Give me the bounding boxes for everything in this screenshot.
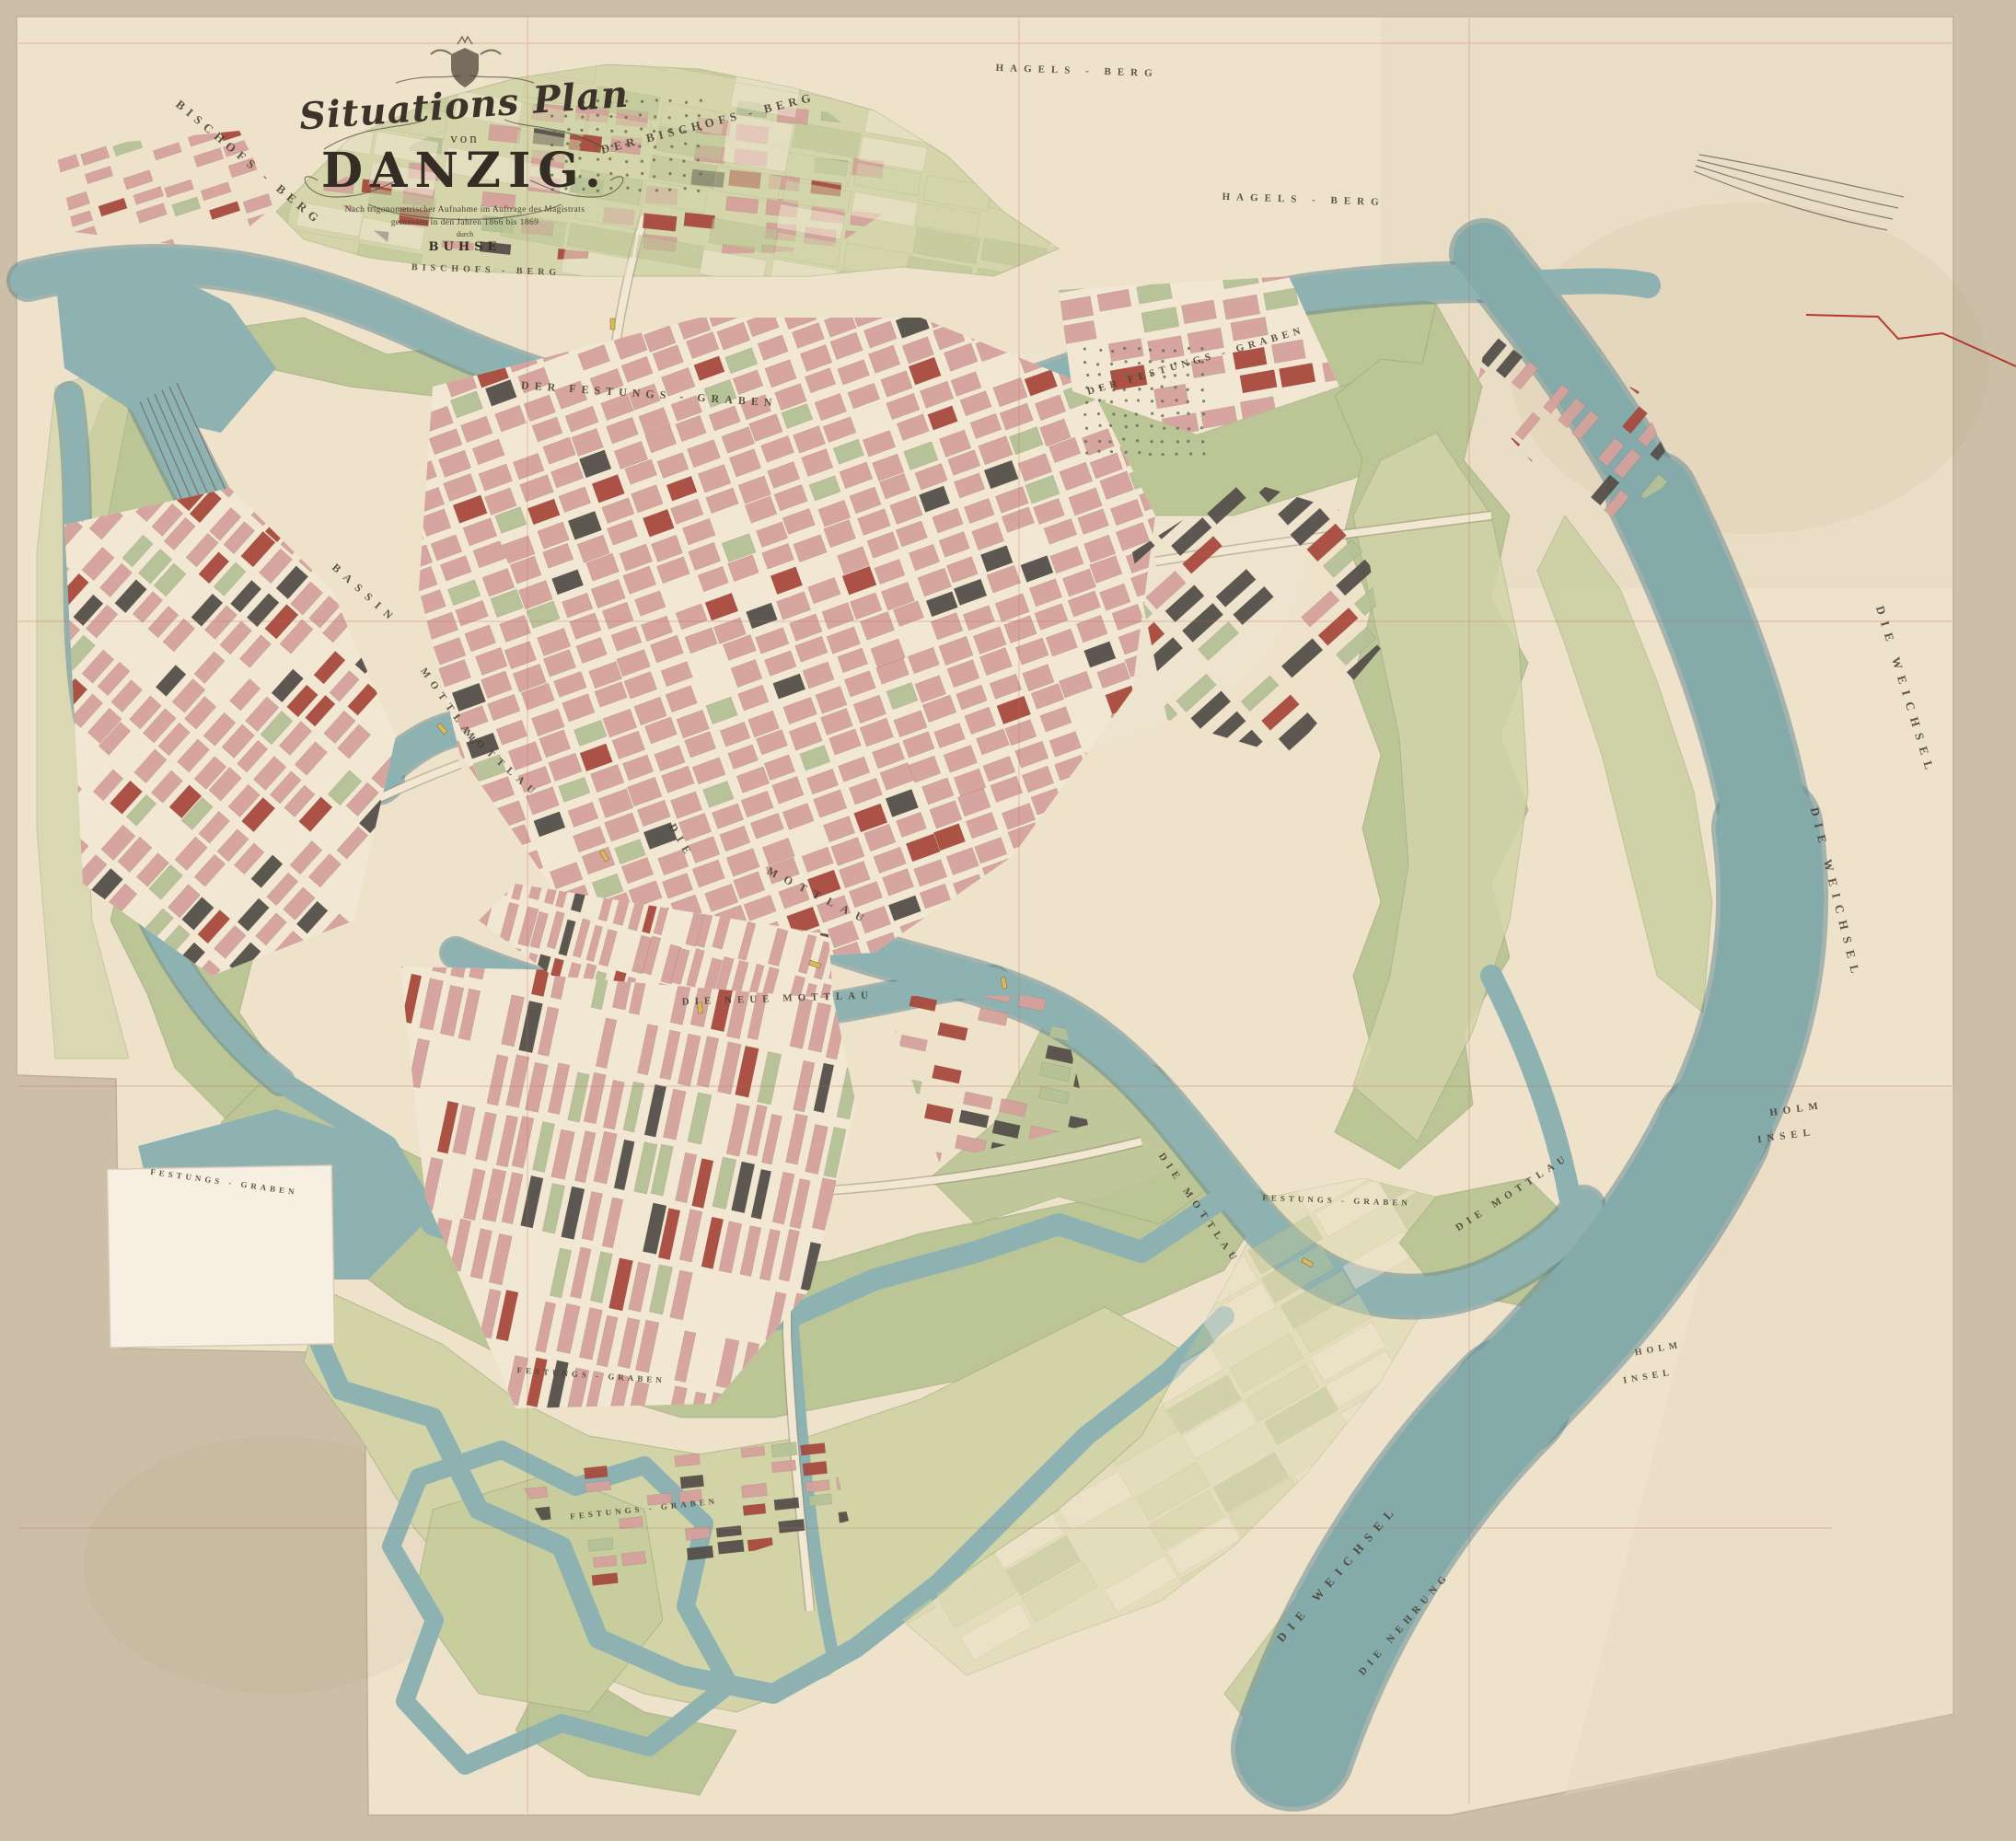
city-block: [295, 1370, 317, 1421]
city-block: [78, 1116, 110, 1149]
city-block: [196, 1343, 218, 1395]
city-block: [0, 504, 2, 536]
city-block: [951, 0, 983, 3]
city-block: [67, 0, 96, 17]
city-block: [42, 1086, 74, 1119]
city-block: [489, 124, 521, 143]
city-block: [0, 524, 17, 543]
city-block: [140, 0, 170, 11]
city-block: [102, 0, 131, 5]
city-block: [0, 604, 1, 634]
city-block: [399, 0, 430, 6]
city-block: [643, 214, 677, 232]
city-block: [287, 0, 317, 3]
city-block: [725, 196, 759, 214]
city-block: [0, 161, 1, 179]
city-block: [0, 297, 10, 331]
city-block: [0, 659, 11, 692]
city-block: [0, 411, 12, 431]
city-block: [0, 400, 6, 434]
city-block: [277, 1365, 298, 1418]
city-block: [910, 0, 942, 16]
city-block: [326, 0, 355, 7]
city-block: [872, 0, 905, 11]
city-block: [380, 0, 413, 11]
city-block: [921, 0, 954, 11]
city-block: [0, 194, 18, 214]
city-block: [0, 62, 9, 80]
city-block: [95, 1441, 117, 1493]
city-block: [0, 511, 9, 528]
city-block: [1037, 0, 1069, 6]
city-block: [0, 723, 14, 755]
city-block: [0, 822, 11, 853]
city-block: [684, 213, 715, 229]
danzig-map: BISCHOFS - BERGDER BISCHOFS - BERGBISCHO…: [0, 0, 2016, 1841]
city-block: [123, 1388, 145, 1439]
city-block: [180, 0, 215, 12]
city-block: [0, 44, 2, 63]
city-block: [29, 0, 57, 9]
city-block: [104, 1386, 126, 1436]
city-block: [363, 0, 394, 16]
city-block: [99, 0, 133, 6]
city-block: [991, 0, 1025, 10]
city-block: [0, 29, 2, 49]
city-block: [253, 1361, 274, 1411]
city-block: [145, 1399, 166, 1448]
city-block: [1419, 0, 1456, 11]
city-block: [237, 1354, 260, 1405]
city-block: [219, 1348, 239, 1399]
city-block: [0, 1026, 11, 1059]
city-block: [165, 1400, 187, 1451]
city-block: [139, 0, 172, 6]
city-block: [0, 359, 17, 392]
city-block: [0, 342, 5, 376]
city-block: [1063, 0, 1096, 9]
city-block: [0, 460, 15, 493]
city-block: [0, 297, 9, 315]
city-block: [1139, 0, 1171, 10]
city-block: [0, 562, 14, 596]
